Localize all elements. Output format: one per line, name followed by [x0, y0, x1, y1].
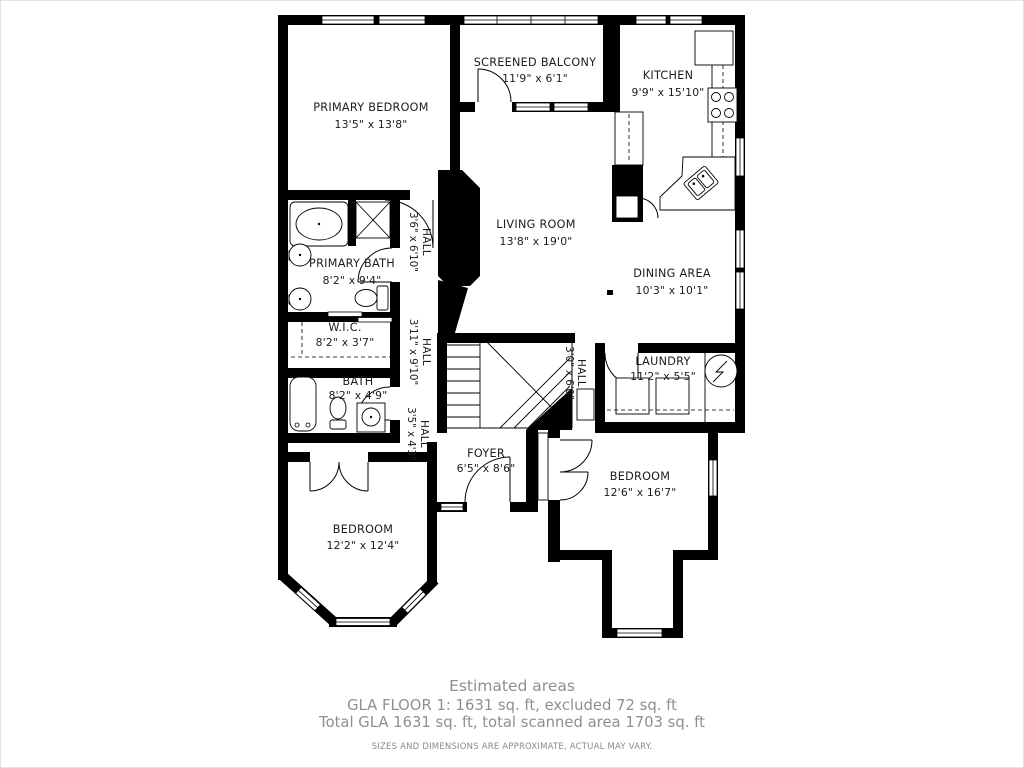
kitchen-island — [615, 112, 643, 165]
kitchen-stove — [708, 88, 737, 122]
hall4-label: HALL — [575, 359, 587, 387]
kitchen-label: KITCHEN — [643, 69, 694, 82]
hall3-dims: 3'5" x 4'3" — [405, 407, 416, 460]
footer-title: Estimated areas — [449, 677, 575, 695]
living-room-dims: 13'8" x 19'0" — [500, 235, 573, 248]
primary-bath-sink-2 — [289, 288, 311, 310]
hall1-dims: 3'6" x 6'10" — [407, 212, 418, 272]
hall3-label: HALL — [418, 420, 430, 448]
laundry-washer — [616, 378, 649, 414]
floor-plan-page: PRIMARY BEDROOM 13'5" x 13'8" SCREENED B… — [0, 0, 1024, 768]
wic-dims: 8'2" x 3'7" — [316, 336, 375, 349]
foyer-dims: 6'5" x 8'6" — [457, 462, 516, 475]
wic-label: W.I.C. — [328, 321, 361, 334]
footer-gla-line: GLA FLOOR 1: 1631 sq. ft, excluded 72 sq… — [347, 697, 677, 714]
foyer-label: FOYER — [467, 447, 505, 460]
kitchen-fridge — [695, 31, 733, 65]
hall2-dims: 3'11" x 9'10" — [407, 319, 418, 385]
footer-disclaimer: SIZES AND DIMENSIONS ARE APPROXIMATE, AC… — [372, 742, 653, 752]
living-room-label: LIVING ROOM — [496, 218, 575, 231]
hall1-label: HALL — [420, 228, 432, 256]
laundry-dims: 11'2" x 5'5" — [630, 370, 696, 383]
hall4-dims: 3'0" x 6'0" — [563, 346, 574, 399]
primary-bath-dims: 8'2" x 9'4" — [323, 274, 382, 287]
primary-bedroom-dims: 13'5" x 13'8" — [335, 118, 408, 131]
primary-bath-sink-1 — [289, 244, 311, 266]
dining-area-dims: 10'3" x 10'1" — [636, 284, 709, 297]
kitchen-dims: 9'9" x 15'10" — [632, 86, 705, 99]
kitchen-pantry — [616, 196, 638, 218]
primary-bath-toilet — [355, 286, 388, 310]
bedroom-left-label: BEDROOM — [333, 523, 394, 536]
kitchen-sink — [683, 166, 719, 201]
bedroom-right-label: BEDROOM — [610, 470, 671, 483]
bedroom-right-dims: 12'6" x 16'7" — [604, 486, 677, 499]
primary-bedroom-label: PRIMARY BEDROOM — [313, 101, 428, 114]
bath-tub — [290, 377, 316, 431]
bedroom-right-doors — [560, 440, 592, 500]
water-heater — [705, 355, 737, 387]
bath-sink — [357, 403, 385, 432]
hall-closet — [577, 389, 594, 420]
bath-dims: 8'2" x 4'9" — [329, 389, 388, 402]
primary-bath-tub — [290, 202, 348, 246]
primary-bath-shower — [356, 202, 390, 238]
laundry-label: LAUNDRY — [635, 355, 690, 368]
screened-balcony-label: SCREENED BALCONY — [474, 56, 597, 69]
screened-balcony-dims: 11'9" x 6'1" — [502, 72, 568, 85]
fireplace — [446, 196, 474, 262]
laundry-dryer — [656, 378, 689, 414]
dining-area-label: DINING AREA — [633, 267, 711, 280]
footer-total-line: Total GLA 1631 sq. ft, total scanned are… — [318, 714, 705, 731]
bedroom-left-dims: 12'2" x 12'4" — [327, 539, 400, 552]
hall2-label: HALL — [420, 338, 432, 366]
bath-label: BATH — [343, 375, 374, 388]
footer: Estimated areas GLA FLOOR 1: 1631 sq. ft… — [318, 677, 705, 752]
primary-bath-label: PRIMARY BATH — [309, 257, 395, 270]
floor-plan-drawing: PRIMARY BEDROOM 13'5" x 13'8" SCREENED B… — [0, 0, 1024, 768]
bedroom-left-double-doors — [310, 462, 368, 491]
foyer-closet — [538, 433, 548, 500]
